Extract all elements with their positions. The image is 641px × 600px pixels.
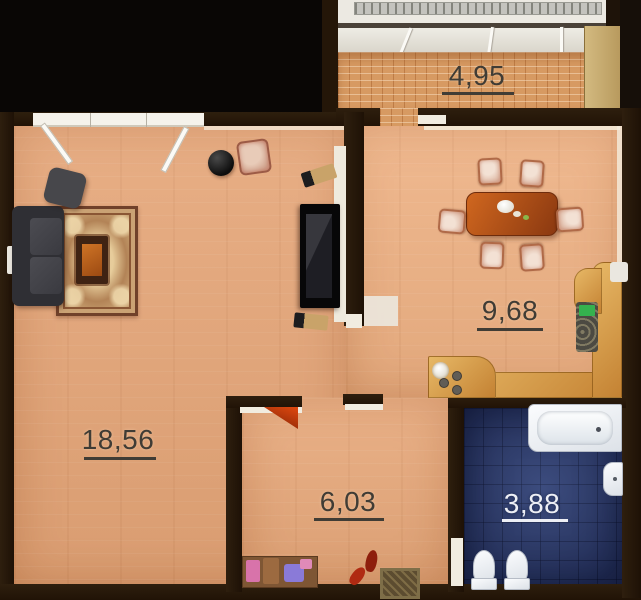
balcony-door-threshold [380,108,418,126]
cabinet-item-wood [263,558,279,584]
dining-chair [519,159,545,188]
living-kitchen-divider-wall [344,112,364,326]
bottom-wall [0,584,641,600]
sofa-cushion [30,218,62,255]
balcony-side-cabinet [584,26,620,110]
balcony-area-underline [442,92,514,95]
living-baseboard-top [204,126,344,130]
table-dish [513,211,521,217]
bathtub-basin [537,411,613,445]
sofa-cushion [30,257,62,294]
armchair [236,138,272,176]
stove-burner [452,385,462,395]
background-void [0,0,332,112]
kitchen-area-label: 9,68 [462,295,558,327]
cabinet-item-pink-small [300,559,312,569]
balcony-railing-hatch [354,2,602,15]
doormat [380,568,420,599]
living-room-area-underline [84,457,156,460]
bathtub-drain [596,427,601,432]
balcony-area-label: 4,95 [430,60,524,92]
dining-chair [556,207,585,233]
dining-chair [480,242,505,270]
hallway-left-wall [226,396,242,592]
floor-plan: 4,95 18,56 9,68 6,03 3,88 [0,0,641,600]
wall-cabinet [610,262,628,282]
kitchen-area-underline [477,328,543,331]
dining-chair [477,157,502,185]
kitchen-baseboard-top [424,126,620,130]
dining-chair [519,243,545,272]
bathroom-door [451,538,463,586]
rug-medallion-center [82,244,102,276]
living-window-divider [146,113,147,127]
kitchen-mat [364,296,398,326]
kitchen-doorway-threshold [345,404,383,410]
cabinet-item-pink [246,560,260,582]
balcony-door-sill [418,115,446,124]
right-wall [622,108,641,598]
counter-sink [432,362,449,379]
bathroom-area-underline [502,519,568,522]
bathroom-area-label: 3,88 [484,488,580,520]
bidet-tank [504,578,530,590]
living-window-band [33,113,204,127]
appliance-display [579,305,595,316]
balcony-left-wall [322,0,338,114]
stove-burner [439,378,449,388]
living-room-area-label: 18,56 [70,424,166,456]
side-table [208,150,234,176]
balcony-glazing-divider [560,27,563,55]
hallway-area-underline [314,518,384,521]
table-dish [523,215,529,220]
hallway-area-label: 6,03 [300,486,396,518]
living-window-divider [90,113,91,127]
divider-wall-end-cap [346,314,362,328]
balcony-right-wall [620,0,641,114]
sink-drain [613,477,617,481]
stove-burner [452,371,462,381]
table-plate [497,200,514,213]
dining-table [466,192,558,236]
toilet-tank [471,578,497,590]
left-wall [0,112,14,598]
dining-chair [438,208,467,234]
balcony-glazing [338,28,604,53]
tv-screen [306,214,332,298]
